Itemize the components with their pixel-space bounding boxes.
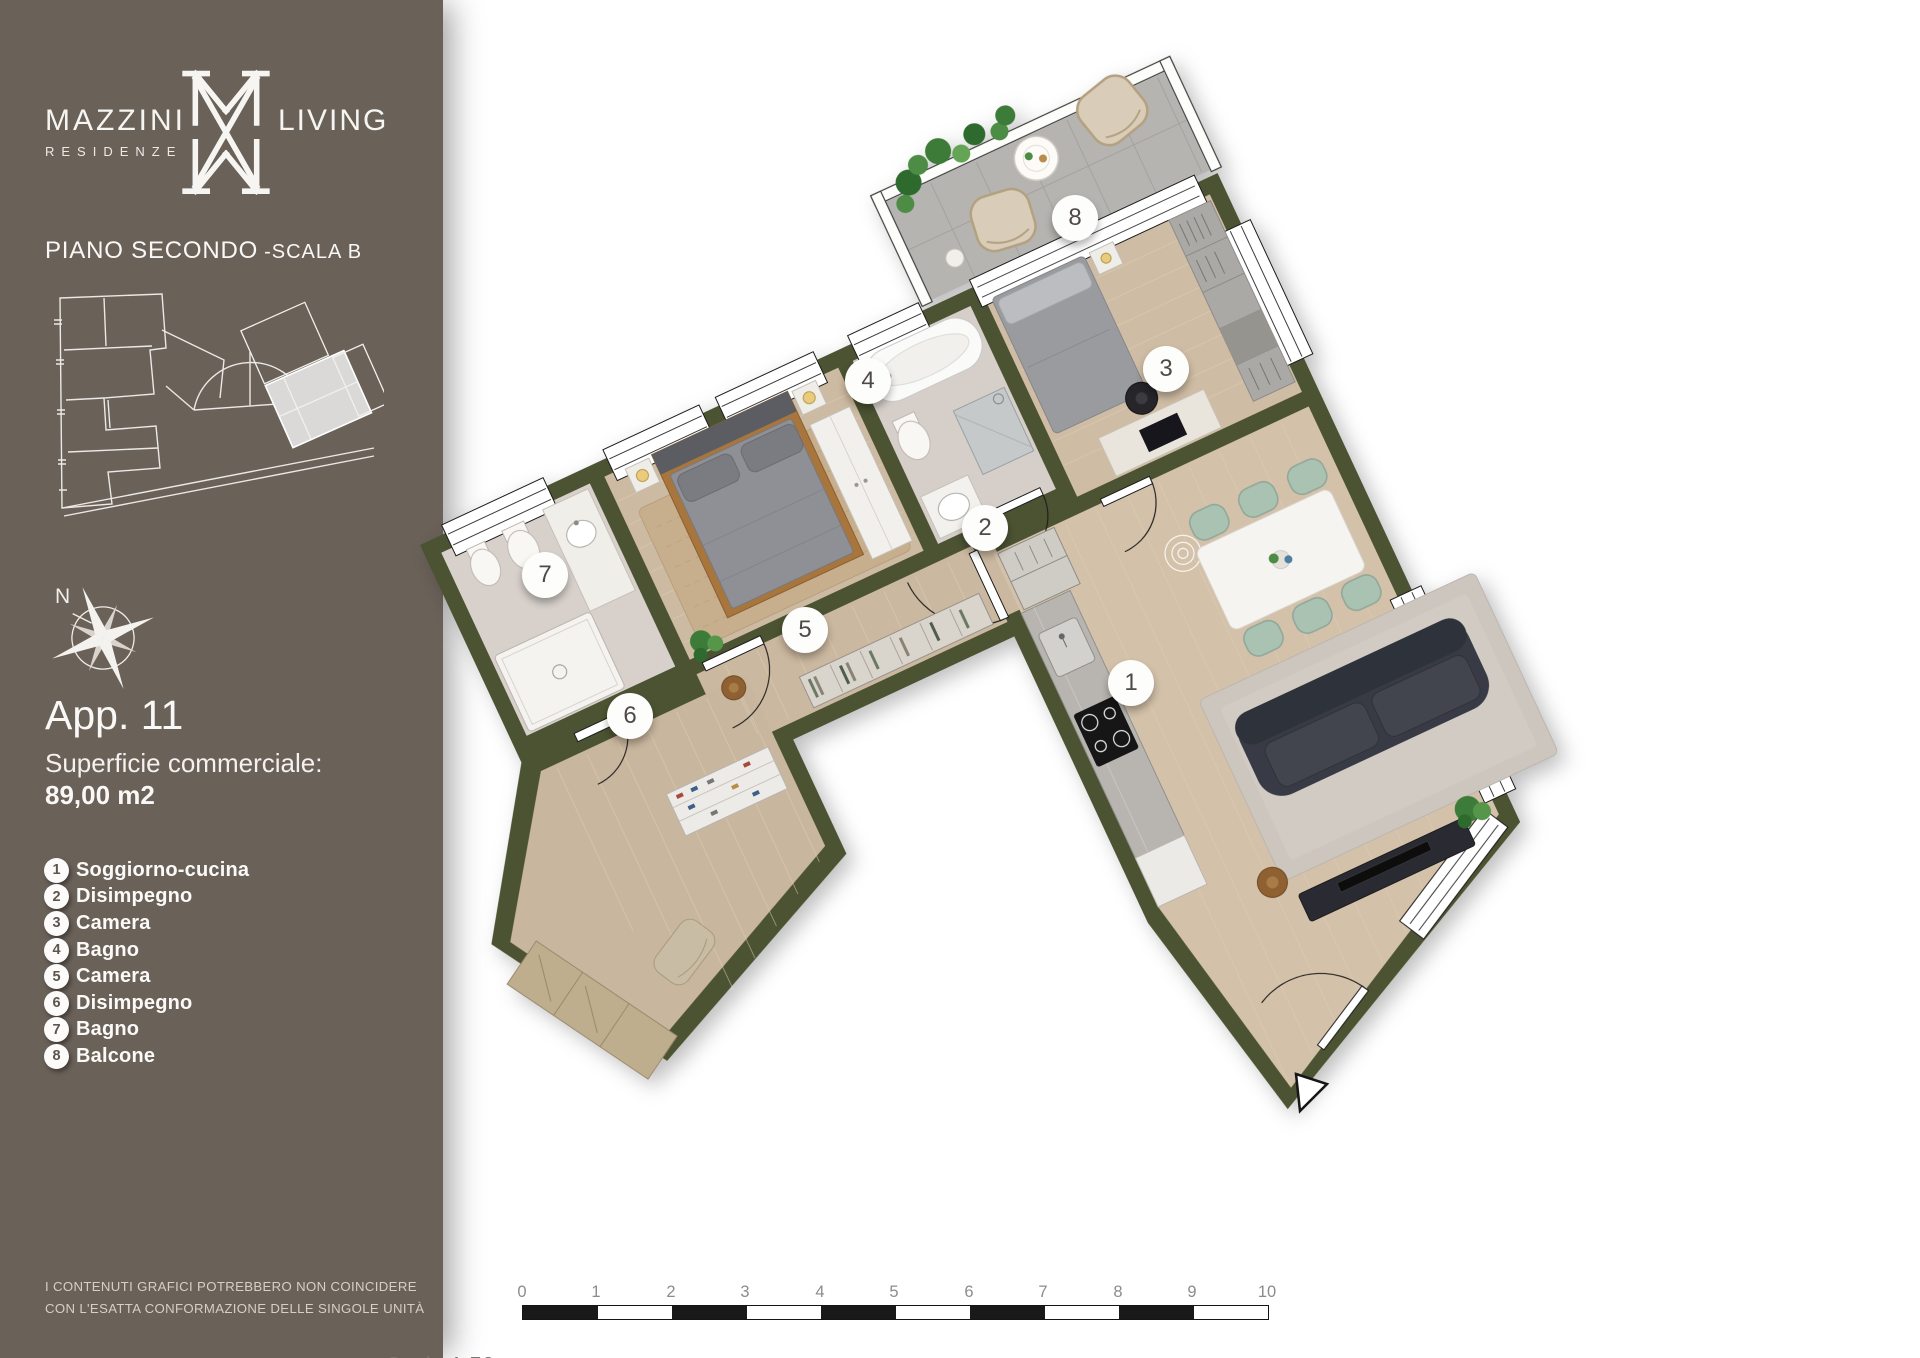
room-marker-3: 3 bbox=[1143, 346, 1189, 392]
scale-number: 10 bbox=[1258, 1283, 1276, 1302]
room-marker-1: 1 bbox=[1108, 660, 1154, 706]
floorplan-sheet: MAZZINI LIVING RESIDENZE PIANO SECONDO-S… bbox=[0, 0, 1920, 1358]
scale-bar-segment bbox=[598, 1306, 673, 1319]
scale-bar-segment bbox=[747, 1306, 822, 1319]
room-marker-7: 7 bbox=[522, 552, 568, 598]
scale-bar-segment bbox=[970, 1306, 1045, 1319]
scale-number: 9 bbox=[1187, 1283, 1196, 1302]
scale-number: 3 bbox=[740, 1283, 749, 1302]
floor-plan-canvas bbox=[0, 0, 1920, 1358]
scale-number: 7 bbox=[1038, 1283, 1047, 1302]
scale-number: 6 bbox=[964, 1283, 973, 1302]
entrance-arrow-icon bbox=[1296, 1074, 1327, 1111]
scale-number: 1 bbox=[591, 1283, 600, 1302]
room-marker-4: 4 bbox=[845, 358, 891, 404]
room-marker-8: 8 bbox=[1052, 195, 1098, 241]
room-marker-6: 6 bbox=[607, 693, 653, 739]
floor-plan-rotated-group bbox=[259, 8, 1646, 1358]
scale-bar-segment bbox=[672, 1306, 747, 1319]
scale-bar-segment bbox=[1045, 1306, 1120, 1319]
scale-number: 2 bbox=[666, 1283, 675, 1302]
scale-number: 5 bbox=[889, 1283, 898, 1302]
scale-bar bbox=[522, 1305, 1269, 1320]
scale-bar-segment bbox=[896, 1306, 971, 1319]
scale-number: 8 bbox=[1113, 1283, 1122, 1302]
scale-bar-segment bbox=[523, 1306, 598, 1319]
scale-bar-segment bbox=[821, 1306, 896, 1319]
scale-bar-segment bbox=[1194, 1306, 1269, 1319]
scale-label: Scala 1:50 bbox=[386, 1352, 495, 1358]
room-marker-2: 2 bbox=[962, 505, 1008, 551]
scale-number: 4 bbox=[815, 1283, 824, 1302]
scale-bar-segment bbox=[1119, 1306, 1194, 1319]
room-marker-5: 5 bbox=[782, 607, 828, 653]
scale-number: 0 bbox=[517, 1283, 526, 1302]
